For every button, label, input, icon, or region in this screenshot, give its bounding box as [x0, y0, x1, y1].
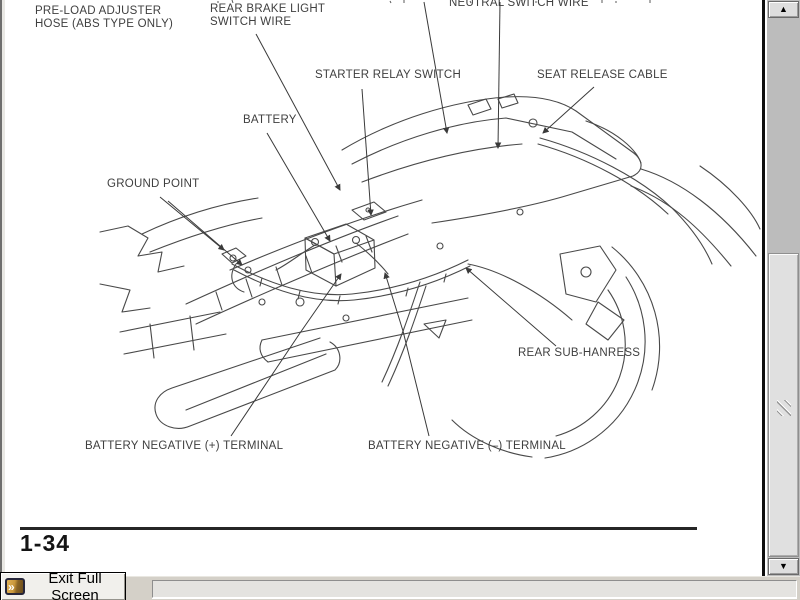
scroll-up-icon: ▲ [779, 5, 788, 14]
label-starter-relay-switch: STARTER RELAY SWITCH [315, 69, 461, 81]
label-hose-abs: HOSE (ABS TYPE ONLY) [35, 18, 173, 30]
label-shock-absorber-clipped: SHOCK ABSORBER [35, 0, 185, 4]
window-left-border-inner [2, 0, 5, 576]
scrollbar-grip-icon [777, 400, 791, 416]
exit-chevron-glyph: » [8, 581, 15, 593]
vertical-scrollbar[interactable]: ▲ ▼ [767, 0, 800, 576]
scroll-down-button[interactable]: ▼ [768, 558, 799, 575]
label-seat-release-cable: SEAT RELEASE CABLE [537, 69, 668, 81]
label-battery: BATTERY [243, 114, 297, 126]
label-rear-subharness: REAR SUB-HANRESS [518, 347, 640, 359]
label-battery-terminal-right: BATTERY NEGATIVE (–) TERMINAL [368, 440, 566, 452]
scroll-down-icon: ▼ [779, 562, 788, 571]
label-rear-brake-light: REAR BRAKE LIGHT [210, 3, 325, 15]
exit-fullscreen-icon: » [5, 578, 25, 595]
label-preload-adjuster: PRE-LOAD ADJUSTER [35, 5, 161, 17]
scroll-up-button[interactable]: ▲ [768, 1, 799, 18]
exit-fullscreen-button[interactable]: » Exit Full Screen [0, 572, 126, 600]
taskbar-panel [152, 580, 797, 598]
motorcycle-wiring-diagram [5, 0, 762, 576]
taskbar: » Exit Full Screen [0, 576, 800, 600]
label-neutral-switch-wire: NEUTRAL SWITCH WIRE [449, 0, 589, 9]
page-edge-line [762, 0, 765, 576]
label-switch-wire: SWITCH WIRE [210, 16, 291, 28]
fullscreen-viewer: SHOCK ABSORBER PRE-LOAD ADJUSTER HOSE (A… [0, 0, 800, 600]
footer-rule [20, 527, 697, 530]
label-battery-terminal-left: BATTERY NEGATIVE (+) TERMINAL [85, 440, 283, 452]
page-number: 1-34 [20, 530, 70, 557]
scrollbar-thumb[interactable] [768, 253, 799, 557]
exit-fullscreen-label: Exit Full Screen [31, 570, 119, 600]
label-ground-point: GROUND POINT [107, 178, 199, 190]
document-page: SHOCK ABSORBER PRE-LOAD ADJUSTER HOSE (A… [5, 0, 762, 576]
